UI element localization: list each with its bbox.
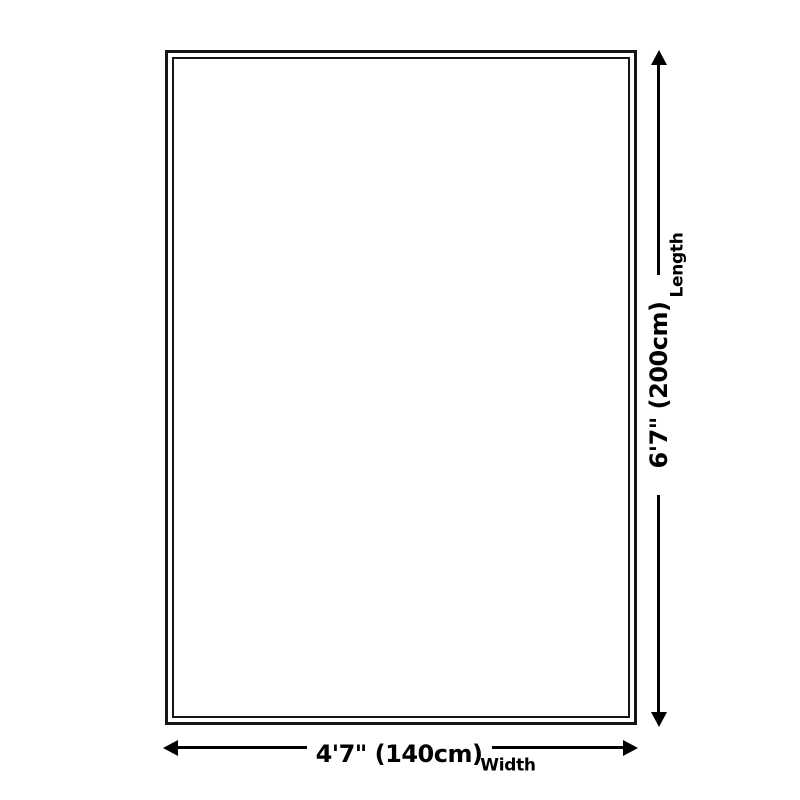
length-dimension-text: 6'7" (200cm) <box>647 302 671 469</box>
length-label: Length <box>670 232 687 297</box>
width-arrow-right-line <box>492 746 630 749</box>
rug-inner-border <box>172 57 630 718</box>
arrow-down-icon <box>651 712 667 727</box>
width-arrow-left-line <box>170 746 307 749</box>
length-arrow-upper-line <box>657 60 660 275</box>
arrow-right-icon <box>623 740 638 756</box>
width-label: Width <box>480 758 535 775</box>
rug-outline <box>165 50 637 725</box>
length-arrow-lower-line <box>657 495 660 722</box>
width-dimension-text: 4'7" (140cm) <box>316 742 483 766</box>
